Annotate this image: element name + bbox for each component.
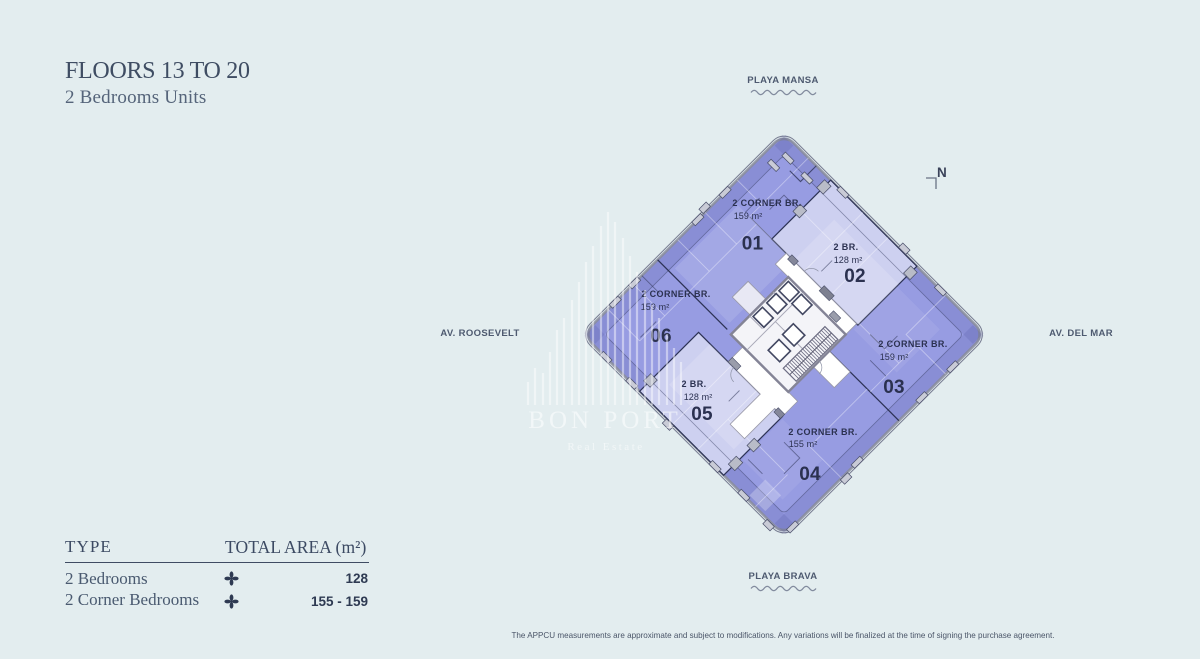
svg-text:02: 02: [844, 266, 866, 287]
svg-text:2 BR.: 2 BR.: [833, 242, 858, 252]
svg-text:BON PORT: BON PORT: [528, 407, 681, 434]
svg-text:159 m²: 159 m²: [734, 211, 763, 221]
svg-text:Real Estate: Real Estate: [567, 441, 644, 453]
svg-text:03: 03: [883, 377, 905, 398]
svg-text:159 m²: 159 m²: [880, 352, 909, 362]
svg-text:2 CORNER BR.: 2 CORNER BR.: [878, 339, 947, 349]
svg-text:155 m²: 155 m²: [789, 439, 818, 449]
svg-text:128 m²: 128 m²: [834, 255, 863, 265]
svg-text:01: 01: [742, 234, 764, 255]
svg-text:04: 04: [799, 464, 821, 485]
svg-text:2 CORNER BR.: 2 CORNER BR.: [732, 198, 801, 208]
svg-text:2 CORNER BR.: 2 CORNER BR.: [788, 427, 857, 437]
